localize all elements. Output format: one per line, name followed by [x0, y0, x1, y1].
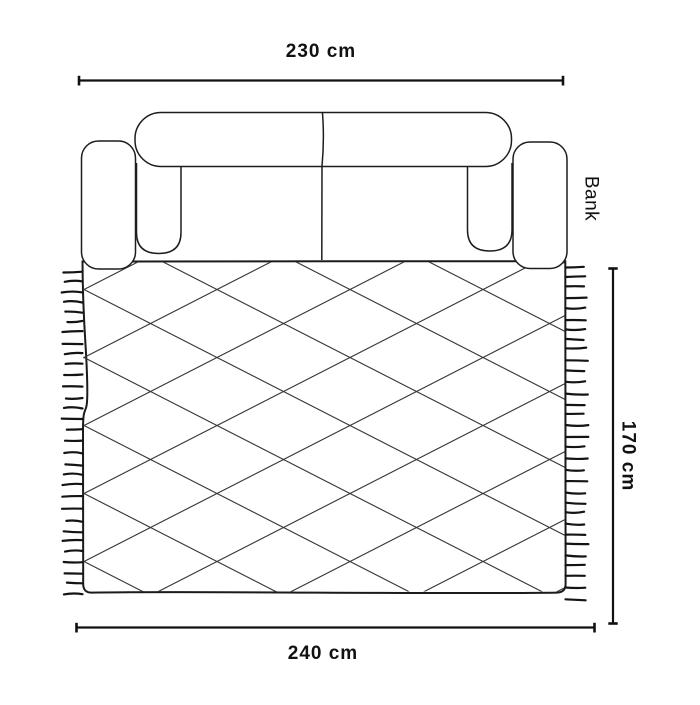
svg-text:Bank: Bank: [581, 176, 602, 221]
svg-text:240 cm: 240 cm: [288, 643, 358, 664]
svg-text:230 cm: 230 cm: [286, 41, 356, 62]
svg-text:170 cm: 170 cm: [618, 421, 639, 491]
